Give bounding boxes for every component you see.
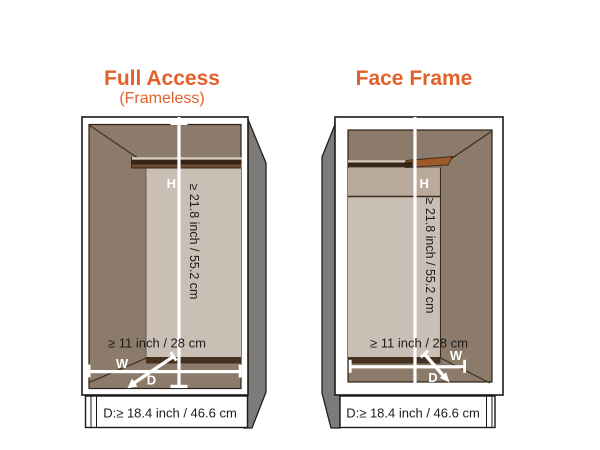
shelf-edge [132,160,242,165]
width-value-text: ≥ 11 inch / 28 cm [108,336,206,351]
width-dim-cap-left [349,360,352,373]
full-access-cabinet: Full Access (Frameless) D:≥ 18.4 inch / … [82,67,266,428]
full-access-subtitle: (Frameless) [119,90,204,107]
shelf-edge-lower [132,165,242,168]
depth-value-text: D:≥ 18.4 inch / 46.6 cm [103,406,237,421]
depth-label: D [147,373,156,388]
height-dim-cap-top [407,122,424,125]
shelf-top-highlight [348,160,410,162]
shelf-top-highlight [132,157,242,159]
depth-label: D [428,370,437,385]
shelf-wedge-notch [405,162,413,168]
height-value-text: ≥ 21.8 inch / 55.2 cm [187,184,201,300]
width-dimension-line [350,365,465,368]
face-frame-cabinet: Face Frame D:≥ 18.4 inch / 46.6 cm [322,67,503,428]
height-dim-cap-top [171,122,188,125]
width-dimension-line [89,370,241,373]
shelf-edge [348,163,410,167]
diagram-canvas: Full Access (Frameless) D:≥ 18.4 inch / … [0,0,600,450]
height-dim-cap-bottom [407,385,424,388]
full-access-title: Full Access [104,67,220,90]
depth-value-text: D:≥ 18.4 inch / 46.6 cm [346,406,480,421]
width-label: W [450,348,463,363]
width-label: W [116,356,129,371]
face-frame-title: Face Frame [356,67,473,90]
width-dim-cap-right [239,365,242,378]
height-label: H [420,176,429,191]
width-dim-cap-right [463,360,466,373]
width-dim-cap-left [88,365,91,378]
height-dim-cap-bottom [171,385,188,388]
cabinet-comparison-diagram: Full Access (Frameless) D:≥ 18.4 inch / … [0,0,600,450]
height-value-text: ≥ 21.8 inch / 55.2 cm [423,198,437,314]
height-label: H [167,176,176,191]
floor-shadow-band [146,357,241,364]
